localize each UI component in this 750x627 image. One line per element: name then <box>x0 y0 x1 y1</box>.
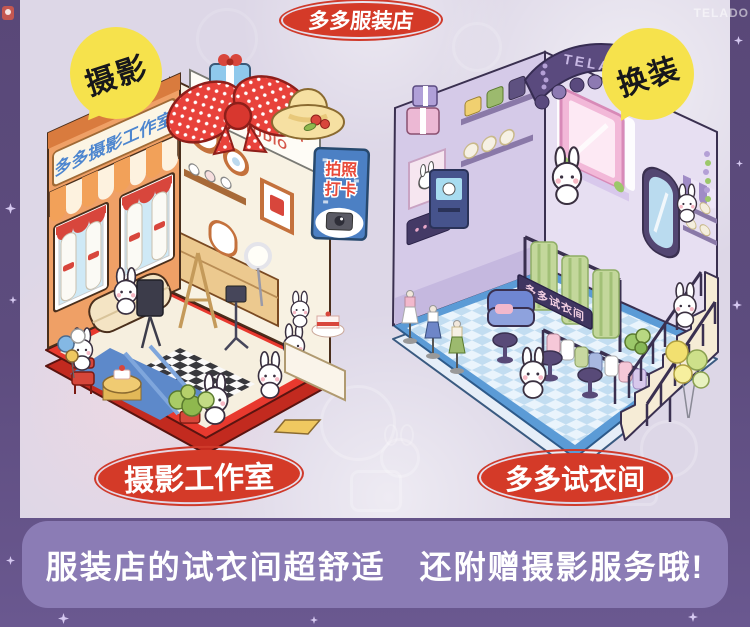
photo-checkin-sign: 拍照 打卡 <box>312 148 369 240</box>
store-sofa <box>488 290 534 326</box>
store-caption-text: 多多试衣间 <box>505 458 645 498</box>
sparkle-icon <box>310 616 318 624</box>
sparkle-icon <box>58 613 69 624</box>
sparkle-icon <box>734 36 743 45</box>
sparkle-icon <box>9 296 17 304</box>
sparkle-icon <box>732 300 742 310</box>
gift-stack-icon <box>407 86 439 134</box>
studio-caption: 摄影工作室 <box>97 447 300 504</box>
photography-badge: 摄影 <box>70 27 162 119</box>
sparkle-icon <box>688 612 698 622</box>
sparkle-icon <box>5 203 16 214</box>
photo-sign-line1: 拍照 <box>325 159 358 179</box>
bottom-banner-text: 服装店的试衣间超舒适 还附赠摄影服务哦! <box>46 542 705 588</box>
photo-sign-line2: 打卡 <box>324 179 357 199</box>
store-caption: 多多试衣间 <box>481 453 669 502</box>
photo-machine <box>430 170 468 228</box>
corner-deco-icon <box>5 9 11 15</box>
fitting-curtain <box>593 270 619 338</box>
dress-up-badge-text: 换装 <box>611 43 685 105</box>
photography-badge-text: 摄影 <box>79 42 153 104</box>
dress-up-badge: 换装 <box>602 28 694 120</box>
bottom-banner: 服装店的试衣间超舒适 还附赠摄影服务哦! <box>22 521 728 608</box>
corner-brand-text: TELADO <box>694 6 749 20</box>
studio-caption-text: 摄影工作室 <box>123 452 274 500</box>
sparkle-icon <box>6 556 15 565</box>
promo-page: TELADO <box>0 0 750 627</box>
sparkle-icon <box>736 160 743 167</box>
